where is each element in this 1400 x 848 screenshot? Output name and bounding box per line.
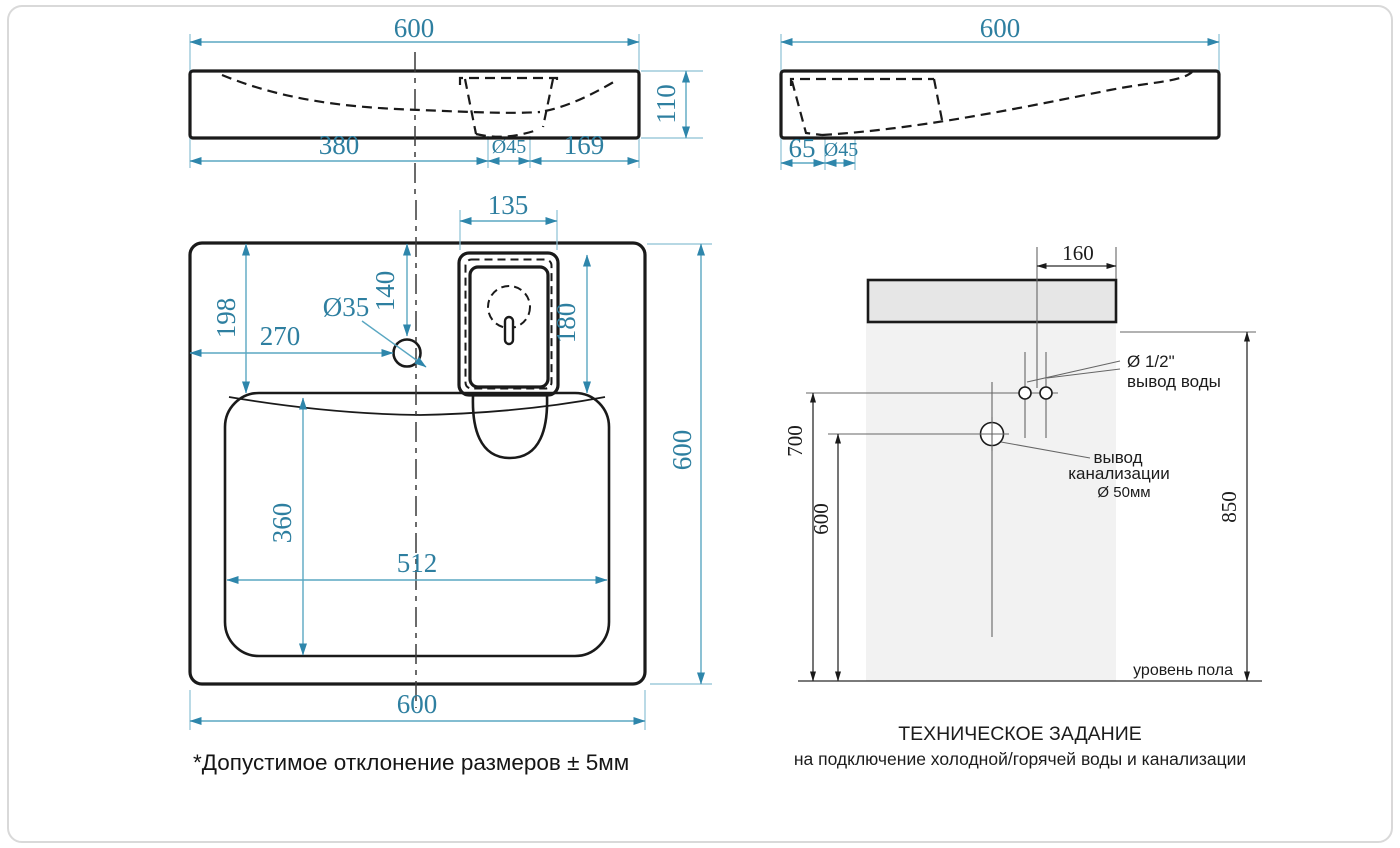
tolerance-note: *Допустимое отклонение размеров ± 5мм <box>193 750 629 775</box>
dim-depth-right: 600 <box>667 430 697 471</box>
dim-basin-width: 512 <box>397 548 438 578</box>
spec-title: ТЕХНИЧЕСКОЕ ЗАДАНИЕ <box>898 723 1142 745</box>
dim-basin-depth: 360 <box>267 503 297 544</box>
dim-offset-160: 160 <box>1062 241 1094 265</box>
side-drain-recess-top <box>791 79 934 86</box>
dim-water-height: 700 <box>783 425 807 457</box>
dim-width-bottom: 600 <box>397 689 438 719</box>
dim-basin-from-top: 198 <box>211 298 241 339</box>
front-view: 600 110 380 Ø45 169 <box>190 13 703 196</box>
front-basin-profile-right <box>545 80 617 111</box>
plan-basin-lip-curve <box>229 397 605 415</box>
spec-subtitle: на подключение холодной/горячей воды и к… <box>794 749 1246 769</box>
water-diameter-label: Ø 1/2" <box>1127 352 1175 371</box>
side-view-outline <box>781 71 1219 138</box>
dim-front-right: 169 <box>564 130 605 160</box>
side-drain-recess-right <box>934 79 942 120</box>
wall-shading <box>866 323 1116 681</box>
overflow-slot <box>505 317 513 344</box>
dim-front-height: 110 <box>651 84 681 124</box>
dim-front-width: 600 <box>394 13 435 43</box>
sewer-diameter-label: Ø 50мм <box>1097 484 1150 501</box>
technical-drawing-page: 600 110 380 Ø45 169 600 65 Ø45 <box>0 0 1400 848</box>
dim-faucet-from-top: 140 <box>370 271 400 312</box>
dim-side-drain: Ø45 <box>824 139 858 161</box>
floor-level-label: уровень пола <box>1133 662 1233 679</box>
dim-front-drain: Ø45 <box>492 136 526 158</box>
water-outlet-label: вывод воды <box>1127 372 1221 391</box>
dim-side-width: 600 <box>980 13 1021 43</box>
side-basin-profile <box>822 72 1192 135</box>
front-drain-recess-right <box>543 79 553 127</box>
dim-faucet-from-left: 270 <box>260 321 301 351</box>
plan-drain-spout <box>473 396 547 458</box>
dim-sewer-height: 600 <box>809 503 833 535</box>
sewer-outlet-label-2: канализации <box>1068 464 1170 483</box>
water-outlet-circle-right <box>1040 387 1052 399</box>
installation-diagram: 160 700 600 850 Ø 1/2" вывод воды вывод … <box>783 241 1262 769</box>
dim-total-height: 850 <box>1217 491 1241 523</box>
dim-overflow-width: 135 <box>488 190 529 220</box>
page-border <box>8 6 1392 842</box>
sink-slab <box>868 280 1116 322</box>
water-outlet-circle-left <box>1019 387 1031 399</box>
front-drain-recess-top <box>460 78 557 85</box>
dim-overflow-length: 180 <box>551 303 581 344</box>
dim-front-left: 380 <box>319 130 360 160</box>
side-view: 600 65 Ø45 <box>781 13 1219 170</box>
drawing-canvas: 600 110 380 Ø45 169 600 65 Ø45 <box>0 0 1400 848</box>
front-basin-profile <box>222 75 540 113</box>
front-drain-recess-left <box>465 79 476 134</box>
side-drain-recess-left <box>792 81 822 135</box>
dim-side-offset: 65 <box>789 133 816 163</box>
dim-faucet-hole-diameter: Ø35 <box>323 292 370 322</box>
plan-view: 135 198 140 Ø35 270 180 600 360 512 600 <box>190 190 712 730</box>
